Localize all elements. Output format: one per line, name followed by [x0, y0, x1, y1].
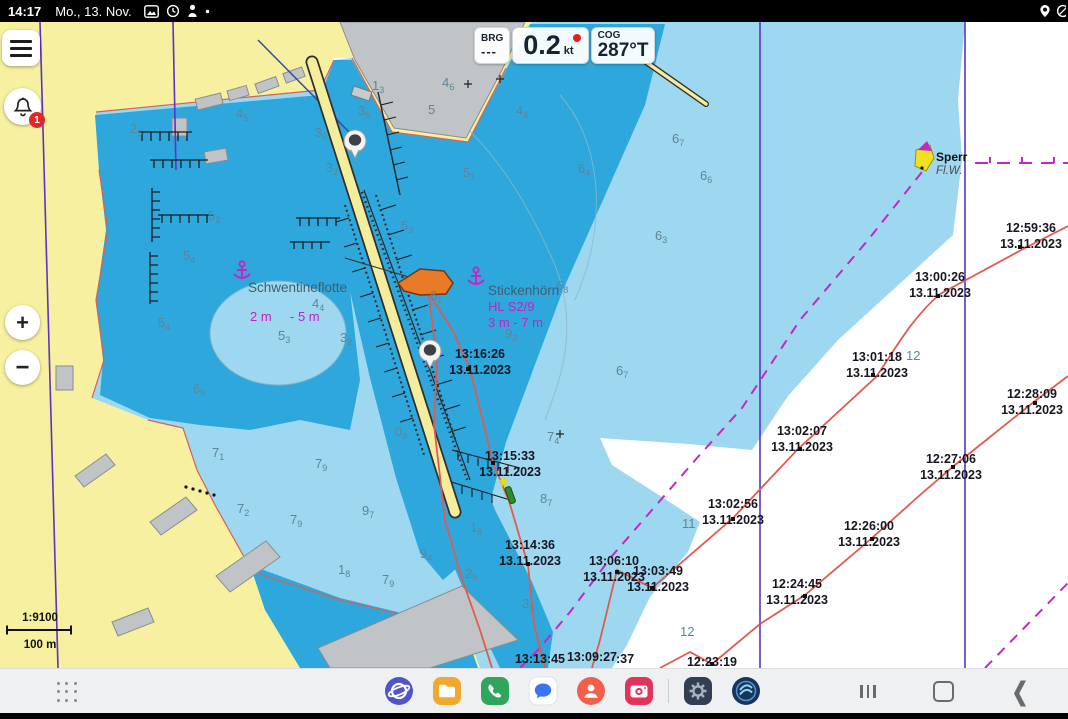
messages-app-icon[interactable]: [528, 676, 558, 706]
wellbeing-icon: [187, 4, 198, 18]
sog-unit: kt: [564, 45, 574, 57]
location-icon: [1039, 4, 1051, 18]
track-timestamp: 12:27:06: [926, 452, 976, 466]
scale-ratio: 1:9100: [4, 612, 76, 625]
nav-buttons: ❮: [838, 669, 1068, 713]
track-date: 13.11.2023: [479, 465, 541, 479]
track-timestamp: :37: [616, 652, 634, 666]
camera-app-icon[interactable]: [624, 676, 654, 706]
brg-cell[interactable]: BRG ---: [474, 27, 510, 64]
contacts-app-icon[interactable]: [576, 676, 606, 706]
chart-label: Stickenhörn: [488, 283, 559, 298]
track-point: [731, 517, 735, 521]
android-taskbar: ❮: [0, 668, 1068, 713]
depth-sounding: 11: [682, 516, 696, 531]
track-date: 13.11.2023: [1000, 237, 1062, 251]
track-timestamp: 13:00:26: [915, 270, 965, 284]
scale-line: [5, 625, 75, 635]
track-date: 13.11.2023: [766, 593, 828, 607]
taskbar-apps: [384, 676, 761, 706]
scale-distance: 100 m: [4, 639, 76, 652]
track-timestamp: 13:06:10: [589, 554, 639, 568]
my-files-app-icon[interactable]: [432, 676, 462, 706]
chart-label: 3 m - 7 m: [488, 315, 543, 330]
track-timestamp: 12:26:00: [844, 519, 894, 533]
zoom-out-button[interactable]: −: [5, 350, 40, 385]
depth-sounding: 12: [680, 624, 694, 639]
chart-label: 2 m: [250, 309, 272, 324]
status-partial-icon: [1056, 4, 1066, 18]
track-date: 13.11.2023: [909, 286, 971, 300]
chart-label: Schwentineflotte: [248, 280, 347, 295]
track-date: 13.11.2023: [449, 363, 511, 377]
track-point: [526, 562, 530, 566]
depth-sounding: 12: [906, 348, 920, 363]
track-timestamp: 13:02:07: [777, 424, 827, 438]
track-timestamp: 13:01:18: [852, 350, 902, 364]
screenshot-icon: [144, 5, 159, 18]
water-deep-basin: [95, 95, 360, 430]
clock: 14:17: [8, 4, 41, 19]
track-date: 13.11.2023: [499, 554, 561, 568]
track-point: [491, 461, 495, 465]
track-date: 13.11.2023: [627, 580, 689, 594]
track-point: [466, 367, 470, 371]
notification-dot-icon: [205, 9, 210, 14]
scale-bar: 1:9100 100 m: [4, 612, 76, 652]
instrument-panel[interactable]: BRG --- 0.2 kt COG 287°T: [474, 27, 655, 64]
track-point: [1018, 245, 1022, 249]
track-timestamp: 13:16:26: [455, 347, 505, 361]
track-date: 13.11.2023: [846, 366, 908, 380]
chart-label: HL S2/9: [488, 299, 535, 314]
taskbar-divider: [668, 679, 669, 703]
track-point: [1033, 401, 1037, 405]
sog-value: 0.2: [523, 30, 561, 60]
recents-button[interactable]: [848, 669, 888, 713]
track-date: 13.11.2023: [1001, 403, 1063, 417]
depth-sounding: 5: [428, 102, 435, 117]
track-point: [615, 570, 619, 574]
track-point: [798, 447, 802, 451]
track-date: 13.11.2023: [838, 535, 900, 549]
track-point: [951, 465, 955, 469]
chart-label: Sperr: [936, 150, 968, 164]
track-timestamp: 13:09:27: [567, 650, 617, 664]
track-timestamp: 13:03:49: [633, 564, 683, 578]
track-point: [871, 373, 875, 377]
track-point: [803, 594, 807, 598]
track-timestamp: 13:14:36: [505, 538, 555, 552]
track-point: [870, 537, 874, 541]
recording-dot-icon: [573, 34, 581, 42]
nv-charts-app-icon[interactable]: [731, 676, 761, 706]
chart-label: Fl.W.: [936, 165, 962, 177]
app-drawer-button[interactable]: [56, 681, 78, 703]
alarm-icon: [166, 4, 180, 18]
settings-app-icon[interactable]: [683, 676, 713, 706]
track-timestamp: 12:59:36: [1006, 221, 1056, 235]
track-point: [936, 294, 940, 298]
alerts-button[interactable]: 1: [4, 88, 41, 125]
internet-app-icon[interactable]: [384, 676, 414, 706]
brg-label: BRG: [481, 33, 503, 44]
bell-icon: [13, 96, 33, 118]
chart-canvas[interactable]: 2545133636324654451646766525463534461926…: [0, 0, 1068, 712]
cog-value: 287°T: [598, 41, 649, 61]
tablet-screen: { "status_bar": { "time": "14:17", "date…: [0, 0, 1068, 712]
menu-button[interactable]: [2, 30, 40, 66]
sog-cell[interactable]: 0.2 kt: [512, 27, 588, 64]
track-point: [650, 586, 654, 590]
track-timestamp: 13:13:45: [515, 652, 565, 666]
track-timestamp: 13:15:33: [485, 449, 535, 463]
alert-badge: 1: [29, 112, 45, 128]
cog-cell[interactable]: COG 287°T: [591, 27, 656, 64]
track-timestamp: 12:28:09: [1007, 387, 1057, 401]
track-timestamp: 12:24:45: [772, 577, 822, 591]
track-date: 13.11.2023: [920, 468, 982, 482]
track-date: 13.11.2023: [771, 440, 833, 454]
track-point: [710, 662, 714, 666]
phone-app-icon[interactable]: [480, 676, 510, 706]
zoom-in-button[interactable]: +: [5, 305, 40, 340]
track-timestamp: 13:02:56: [708, 497, 758, 511]
brg-value: ---: [481, 44, 503, 59]
back-button[interactable]: ❮: [1000, 664, 1040, 719]
status-date: Mo., 13. Nov.: [55, 4, 131, 19]
android-status-bar: 14:17 Mo., 13. Nov.: [0, 0, 1068, 22]
home-button[interactable]: [923, 669, 963, 713]
chart-label: - 5 m: [290, 309, 320, 324]
